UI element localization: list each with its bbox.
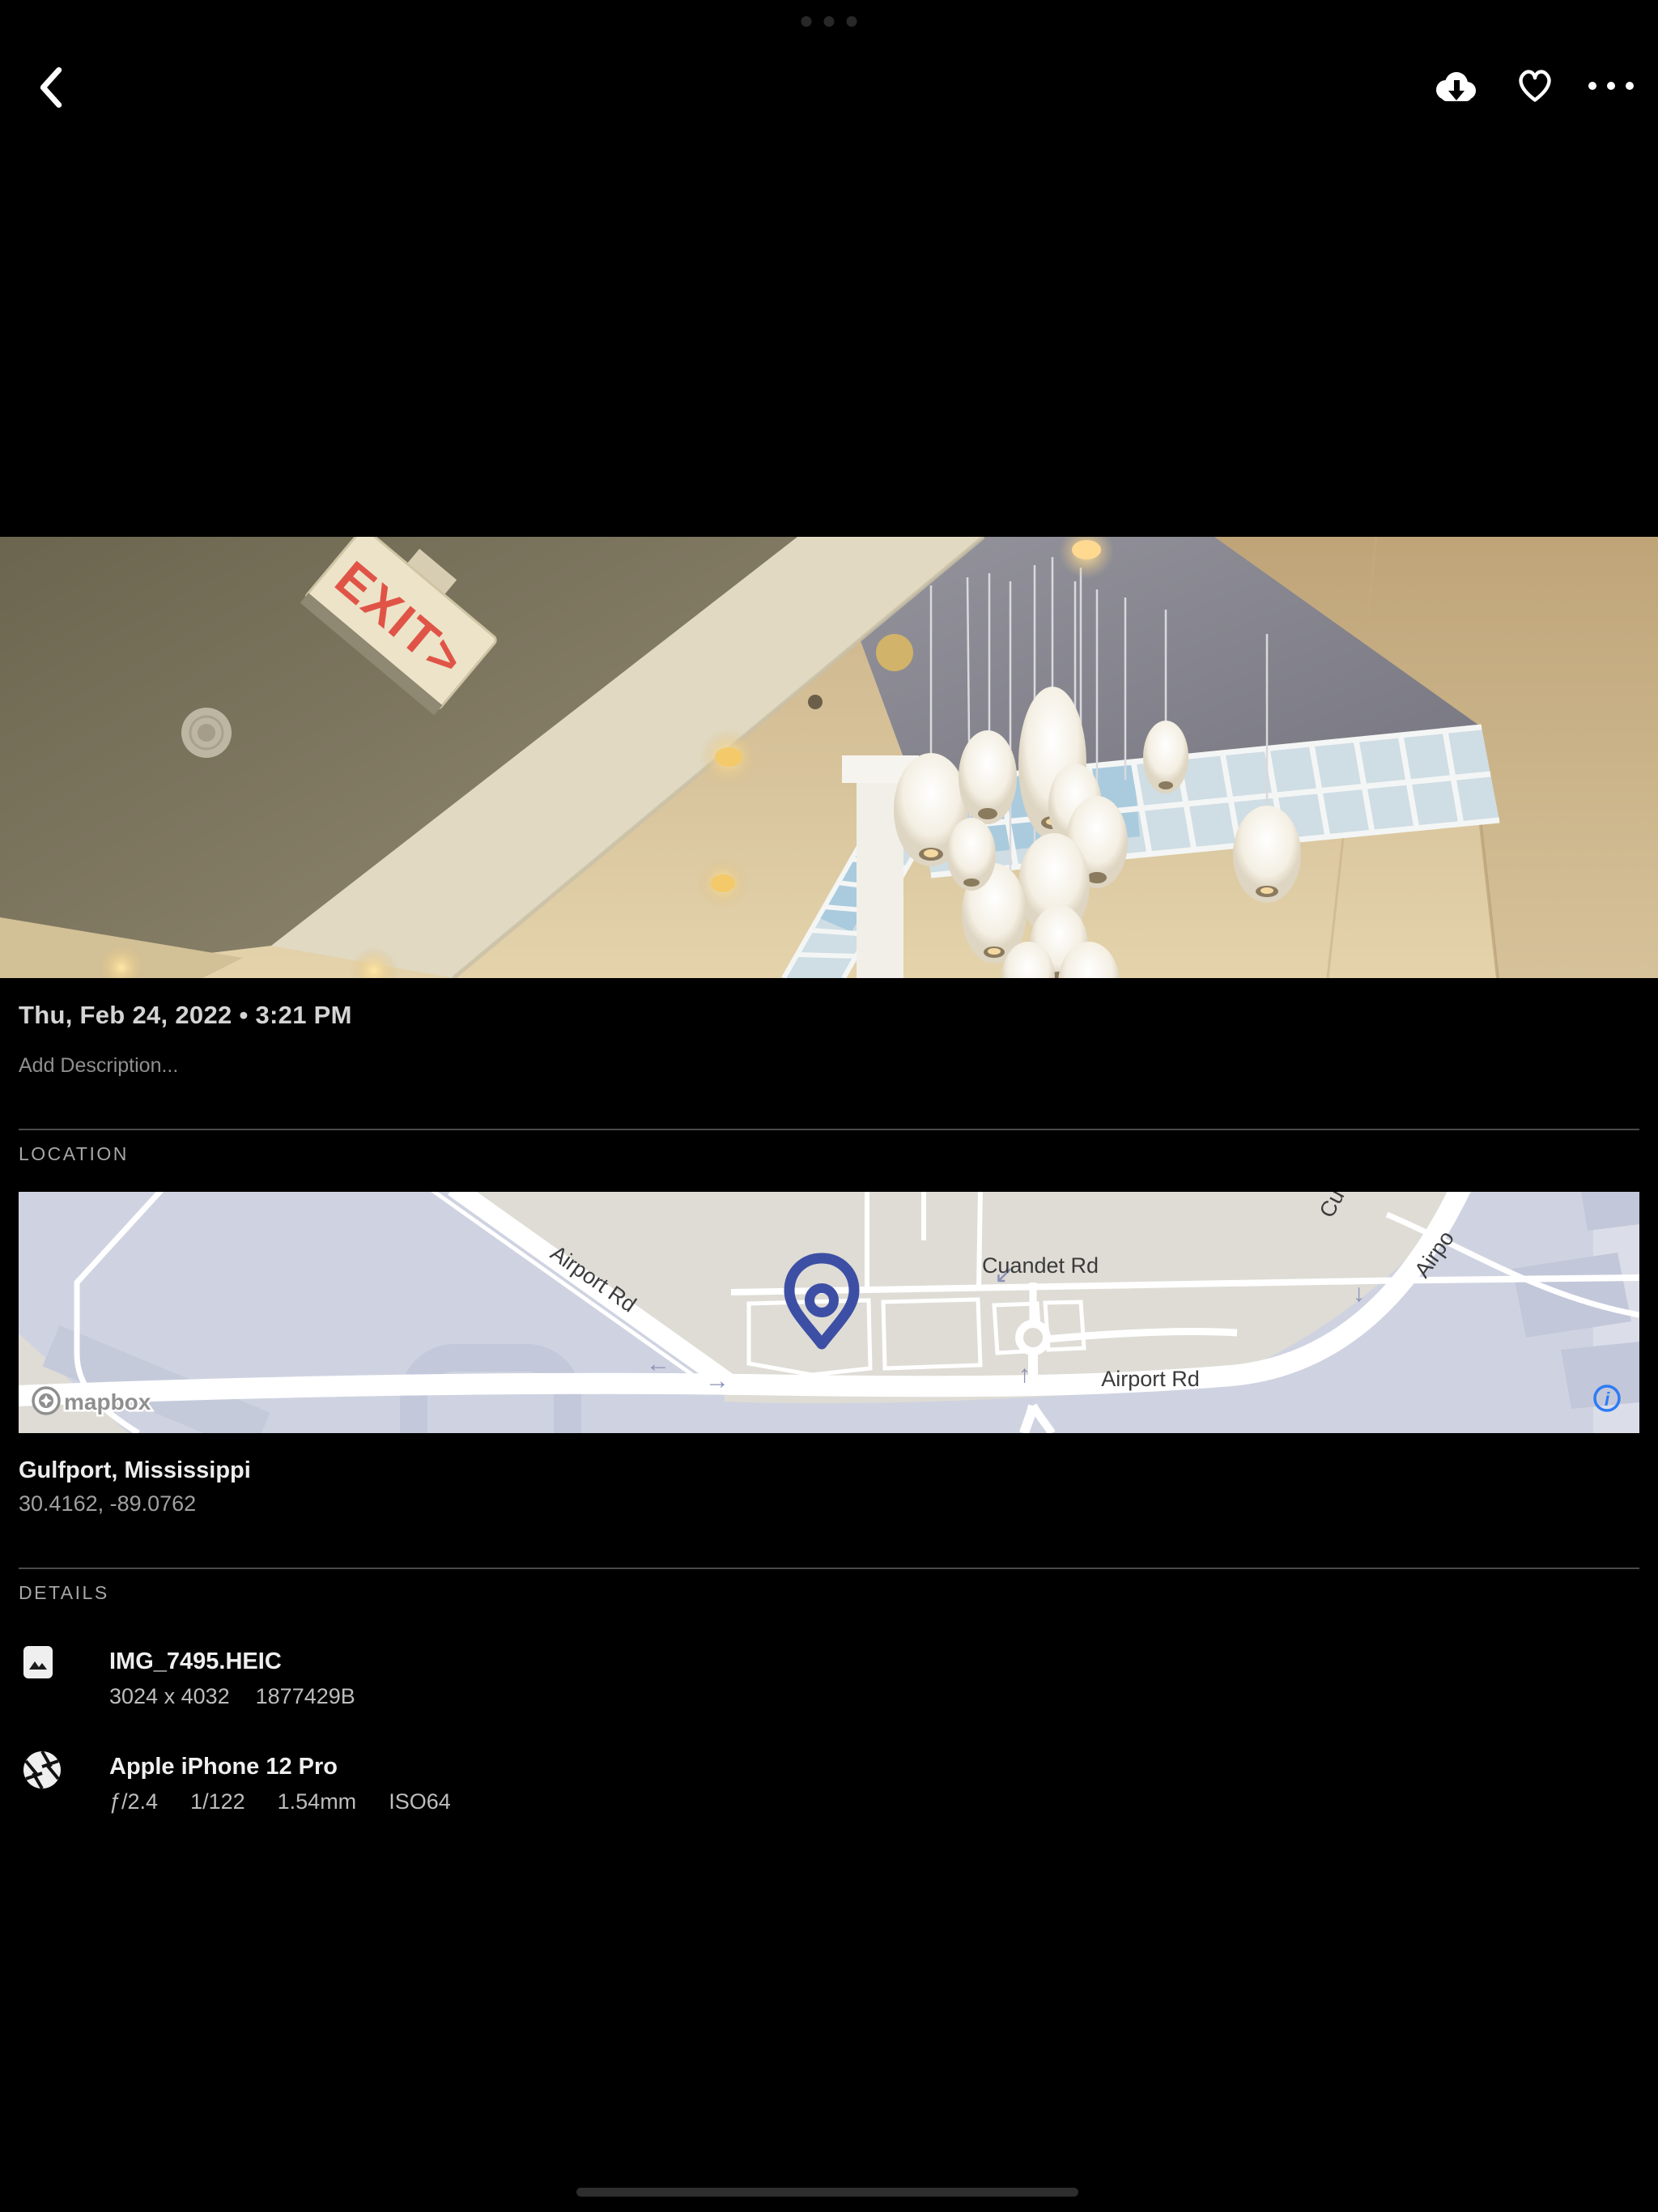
home-indicator[interactable] — [576, 2188, 1078, 2197]
camera-iso: ISO64 — [389, 1789, 451, 1814]
file-dimensions: 3024 x 4032 — [109, 1684, 230, 1709]
heart-icon — [1516, 66, 1554, 105]
chevron-left-icon — [36, 65, 66, 110]
camera-aperture-icon — [23, 1750, 62, 1793]
svg-text:Airport Rd: Airport Rd — [1101, 1367, 1200, 1391]
svg-text:↓: ↓ — [1353, 1280, 1365, 1307]
description-input[interactable]: Add Description... — [19, 1054, 178, 1078]
map-canvas: ← → ↑ ↙ ↓ Airport Rd Airport Rd Cuandet … — [19, 1192, 1639, 1433]
back-button[interactable] — [36, 65, 66, 113]
svg-text:i: i — [1605, 1389, 1610, 1410]
details-section-label: DETAILS — [19, 1582, 109, 1604]
mapbox-logo[interactable]: mapbox — [33, 1388, 151, 1414]
file-name: IMG_7495.HEIC — [109, 1648, 282, 1675]
photo-detail-screen: EXIT> — [0, 0, 1658, 2212]
multitasking-menu-icon[interactable] — [801, 16, 857, 27]
image-file-icon — [23, 1645, 53, 1683]
section-divider — [19, 1129, 1639, 1130]
location-coordinates: 30.4162, -89.0762 — [19, 1491, 196, 1516]
favorite-button[interactable] — [1516, 66, 1554, 108]
svg-text:Cuandet Rd: Cuandet Rd — [982, 1253, 1099, 1278]
download-button[interactable] — [1430, 68, 1482, 108]
svg-text:mapbox: mapbox — [64, 1389, 151, 1414]
map-roundabout — [1019, 1324, 1047, 1351]
file-size: 1877429B — [256, 1684, 355, 1709]
ellipsis-icon — [1588, 68, 1634, 104]
camera-shutter: 1/122 — [190, 1789, 245, 1814]
camera-settings: ƒ/2.4 1/122 1.54mm ISO64 — [109, 1789, 483, 1814]
photo-datetime: Thu, Feb 24, 2022 • 3:21 PM — [19, 1001, 352, 1030]
camera-model: Apple iPhone 12 Pro — [109, 1754, 338, 1780]
svg-text:←: ← — [646, 1351, 670, 1377]
location-map[interactable]: ← → ↑ ↙ ↓ Airport Rd Airport Rd Cuandet … — [19, 1192, 1639, 1433]
cloud-download-icon — [1430, 68, 1482, 105]
camera-focal-length: 1.54mm — [278, 1789, 357, 1814]
more-options-button[interactable] — [1588, 68, 1634, 104]
photo-viewer[interactable]: EXIT> — [0, 537, 1658, 978]
location-place: Gulfport, Mississippi — [19, 1457, 251, 1484]
location-section-label: LOCATION — [19, 1143, 129, 1165]
lobby-ceiling-photo: EXIT> — [0, 537, 1658, 978]
camera-aperture: ƒ/2.4 — [109, 1789, 158, 1814]
section-divider — [19, 1568, 1639, 1569]
file-meta: 3024 x 4032 1877429B — [109, 1684, 381, 1709]
svg-text:↑: ↑ — [1018, 1361, 1031, 1388]
svg-text:→: → — [705, 1368, 729, 1394]
